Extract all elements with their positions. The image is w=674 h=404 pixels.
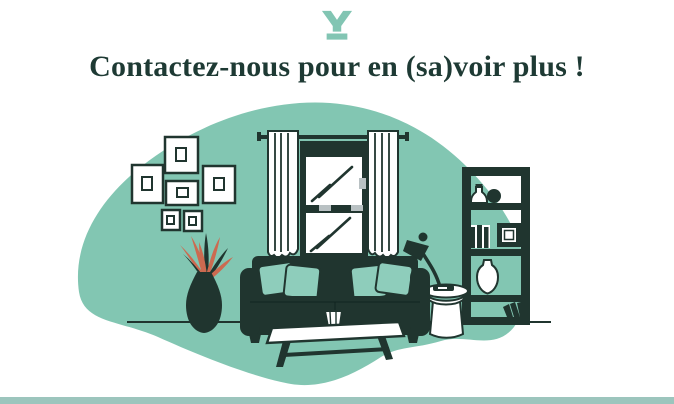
shelf-books-icon [469,225,490,248]
window-latch-icon [319,205,331,211]
right-curtain [368,131,398,258]
sofa-foot [407,334,419,343]
picture-frame [165,137,198,173]
shelf-frame-icon [497,223,521,247]
window [300,141,368,259]
contact-section: Contactez-nous pour en (sa)voir plus ! [0,0,674,404]
sofa-foot [249,334,261,343]
shelf-sphere-icon [487,189,501,203]
picture-frame [184,211,202,231]
footer-accent-bar [0,397,674,404]
picture-frame [162,210,180,230]
window-latch-icon [351,205,363,211]
picture-frame [203,166,235,203]
window-hinge-icon [359,178,366,189]
picture-frame [166,181,198,205]
picture-frame [132,165,163,203]
left-curtain [268,131,298,258]
living-room-illustration [0,0,674,404]
